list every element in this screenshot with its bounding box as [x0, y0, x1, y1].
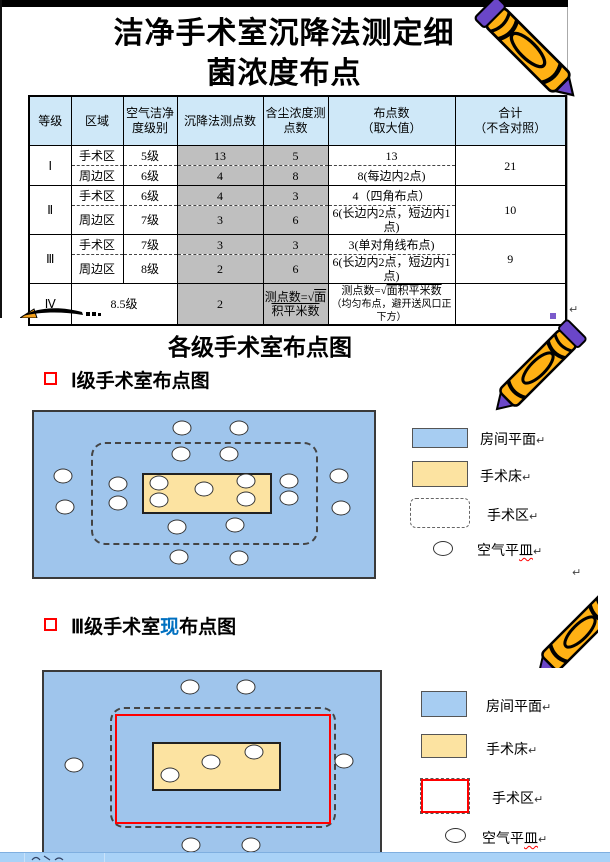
air-plate-point: [201, 755, 220, 770]
formatting-pilcrow: ↵: [572, 566, 581, 579]
formatting-pilcrow: ↵: [569, 303, 578, 316]
pencil-icon: [528, 588, 598, 668]
purple-marker: [550, 313, 556, 319]
air-plate-point: [53, 469, 72, 484]
air-plate-point: [332, 501, 351, 516]
cell-points: 3(单对角线布点): [328, 235, 455, 255]
col-header-zone: 区域: [71, 96, 123, 146]
table-row: Ⅰ 手术区 5级 13 5 13 21: [29, 146, 566, 166]
formatting-pilcrow: ↵: [522, 471, 531, 484]
legend-zone-red-swatch: [420, 778, 470, 814]
col-header-cleanliness: 空气洁净 度级别: [123, 96, 177, 146]
section-title: 各级手术室布点图: [0, 328, 520, 362]
cell-level: 5级: [123, 146, 177, 166]
formatting-pilcrow: ↵: [534, 793, 543, 806]
red-square-bullet-icon: [44, 618, 57, 631]
col-header-grade: 等级: [29, 96, 71, 146]
air-plate-point: [182, 838, 201, 853]
legend-label: 手术区↵: [492, 788, 543, 808]
cell-total: 21: [455, 146, 566, 186]
air-plate-point: [329, 469, 348, 484]
cell-settle: 3: [177, 235, 263, 255]
air-plate-point: [172, 421, 191, 436]
air-plate-point: [108, 476, 127, 491]
air-plate-point: [241, 838, 260, 853]
legend-zone-red-border: [421, 779, 469, 813]
air-plate-point: [237, 491, 256, 506]
slide-right-edge: [567, 7, 568, 331]
air-plate-point: [230, 421, 249, 436]
cell-dust: 5: [263, 146, 328, 166]
legend-label: 手术区↵: [487, 505, 538, 525]
air-plate-point: [236, 679, 255, 694]
status-bar-scribble-icon: [30, 854, 70, 862]
legend-zone-swatch: [410, 498, 470, 528]
table-row: Ⅱ 手术区 6级 4 3 4（四角布点） 10: [29, 186, 566, 206]
document-page: 洁净手术室沉降法测定细 菌浓度布点 等级 区域 空气洁净 度级别 沉降法测点数 …: [0, 0, 610, 862]
cell-points: 6(长边内2点，短边内1点): [328, 206, 455, 235]
col-header-layout-count: 布点数 （取大值）: [328, 96, 455, 146]
formatting-pilcrow: ↵: [533, 545, 542, 558]
cell-points-formula: 测点数=√面积平米数 （均匀布点，避开送风口正下方）: [328, 284, 455, 326]
cell-grade: Ⅲ: [29, 235, 71, 284]
misspelled-char: 皿: [524, 832, 538, 847]
slide-left-border: [0, 0, 2, 318]
air-plate-point: [245, 745, 264, 760]
air-plate-point: [150, 492, 169, 507]
cell-settle: 2: [177, 284, 263, 326]
cell-settle: 13: [177, 146, 263, 166]
cell-dust: 3: [263, 235, 328, 255]
air-plate-point: [280, 473, 299, 488]
legend-bed-swatch: [421, 734, 467, 758]
cell-dust: 6: [263, 206, 328, 235]
air-plate-point: [55, 500, 74, 515]
cell-zone: 手术区: [71, 186, 123, 206]
table-row: Ⅳ 8.5级 2 测点数=√面积平米数 测点数=√面积平米数 （均匀布点，避开送…: [29, 284, 566, 326]
formatting-pilcrow: ↵: [542, 701, 551, 714]
cell-level: 7级: [123, 206, 177, 235]
cell-grade: Ⅱ: [29, 186, 71, 235]
cell-settle: 4: [177, 186, 263, 206]
formula-prefix: 测点数=: [341, 285, 380, 297]
cell-level: 7级: [123, 235, 177, 255]
cell-zone: 周边区: [71, 206, 123, 235]
partial-pencil-icon: [20, 303, 105, 318]
cell-zone: 周边区: [71, 166, 123, 186]
bullet-level3-heading: Ⅲ级手术室现布点图: [44, 612, 236, 639]
legend-air-plate-swatch: [445, 828, 466, 843]
legend-label: 房间平面↵: [486, 696, 551, 716]
formatting-pilcrow: ↵: [529, 510, 538, 523]
cell-grade: Ⅰ: [29, 146, 71, 186]
col-header-total: 合计 （不含对照）: [455, 96, 566, 146]
legend-label: 空气平皿↵: [482, 828, 547, 848]
measurement-points-table: 等级 区域 空气洁净 度级别 沉降法测点数 含尘浓度测 点数 布点数 （取大值）…: [28, 95, 567, 326]
air-plate-point: [168, 520, 187, 535]
formula-note: （均匀布点，避开送风口正下方）: [330, 298, 454, 324]
status-bar: [0, 852, 610, 862]
cell-points: 8(每边内2点): [328, 166, 455, 186]
red-square-bullet-icon: [44, 372, 57, 385]
air-plate-point: [225, 518, 244, 533]
cell-zone: 周边区: [71, 255, 123, 284]
misspelled-char: 皿: [519, 544, 533, 559]
air-plate-point: [195, 482, 214, 497]
legend-room-swatch: [421, 691, 467, 717]
cell-dust: 6: [263, 255, 328, 284]
air-plate-point: [64, 758, 83, 773]
cell-dust-formula: 测点数=√面积平米数: [263, 284, 328, 326]
bullet-level1-heading: Ⅰ级手术室布点图: [44, 366, 210, 393]
air-plate-point: [280, 490, 299, 505]
formula-prefix: 测点数=: [265, 290, 308, 304]
status-bar-separator: [24, 853, 25, 862]
air-plate-point: [108, 496, 127, 511]
level1-room-plan: [32, 410, 376, 579]
air-plate-point: [230, 551, 249, 566]
formatting-pilcrow: ↵: [528, 744, 537, 757]
cell-points: 4（四角布点）: [328, 186, 455, 206]
cell-points: 6(长边内2点，短边内1点): [328, 255, 455, 284]
legend-label: 手术床↵: [480, 466, 531, 486]
air-plate-point: [171, 447, 190, 462]
legend-bed-swatch: [412, 461, 468, 487]
table-row: Ⅲ 手术区 7级 3 3 3(单对角线布点) 9: [29, 235, 566, 255]
legend-room-swatch: [412, 428, 468, 448]
bullet-text: Ⅰ级手术室布点图: [71, 371, 210, 392]
level3-room-plan: [42, 670, 382, 856]
bullet-text-highlight: 现: [160, 617, 179, 638]
cell-level: 6级: [123, 186, 177, 206]
air-plate-point: [181, 679, 200, 694]
cell-zone: 手术区: [71, 146, 123, 166]
cell-settle: 2: [177, 255, 263, 284]
cell-settle: 4: [177, 166, 263, 186]
formula-radicand: 面积平米数: [387, 285, 442, 297]
air-plate-point: [150, 475, 169, 490]
cell-dust: 8: [263, 166, 328, 186]
col-header-dust-count: 含尘浓度测 点数: [263, 96, 328, 146]
cell-points: 13: [328, 146, 455, 166]
air-plate-point: [169, 550, 188, 565]
air-plate-point: [237, 473, 256, 488]
legend-label: 房间平面↵: [480, 429, 545, 449]
bullet-text-prefix: Ⅲ级手术室: [71, 617, 160, 638]
bullet-text-suffix: 布点图: [179, 617, 236, 638]
legend-label: 空气平皿↵: [477, 540, 542, 560]
air-plate-point: [161, 768, 180, 783]
legend-air-plate-swatch: [433, 541, 453, 556]
cell-zone: 手术区: [71, 235, 123, 255]
cell-level: 8级: [123, 255, 177, 284]
air-plate-point: [220, 447, 239, 462]
air-plate-point: [335, 753, 354, 768]
cell-level: 6级: [123, 166, 177, 186]
col-header-settle-count: 沉降法测点数: [177, 96, 263, 146]
formatting-pilcrow: ↵: [538, 833, 547, 846]
cell-total: 9: [455, 235, 566, 284]
legend-label: 手术床↵: [486, 739, 537, 759]
cell-total: 10: [455, 186, 566, 235]
status-bar-separator: [104, 853, 105, 862]
cell-dust: 3: [263, 186, 328, 206]
formatting-pilcrow: ↵: [536, 434, 545, 447]
cell-settle: 3: [177, 206, 263, 235]
